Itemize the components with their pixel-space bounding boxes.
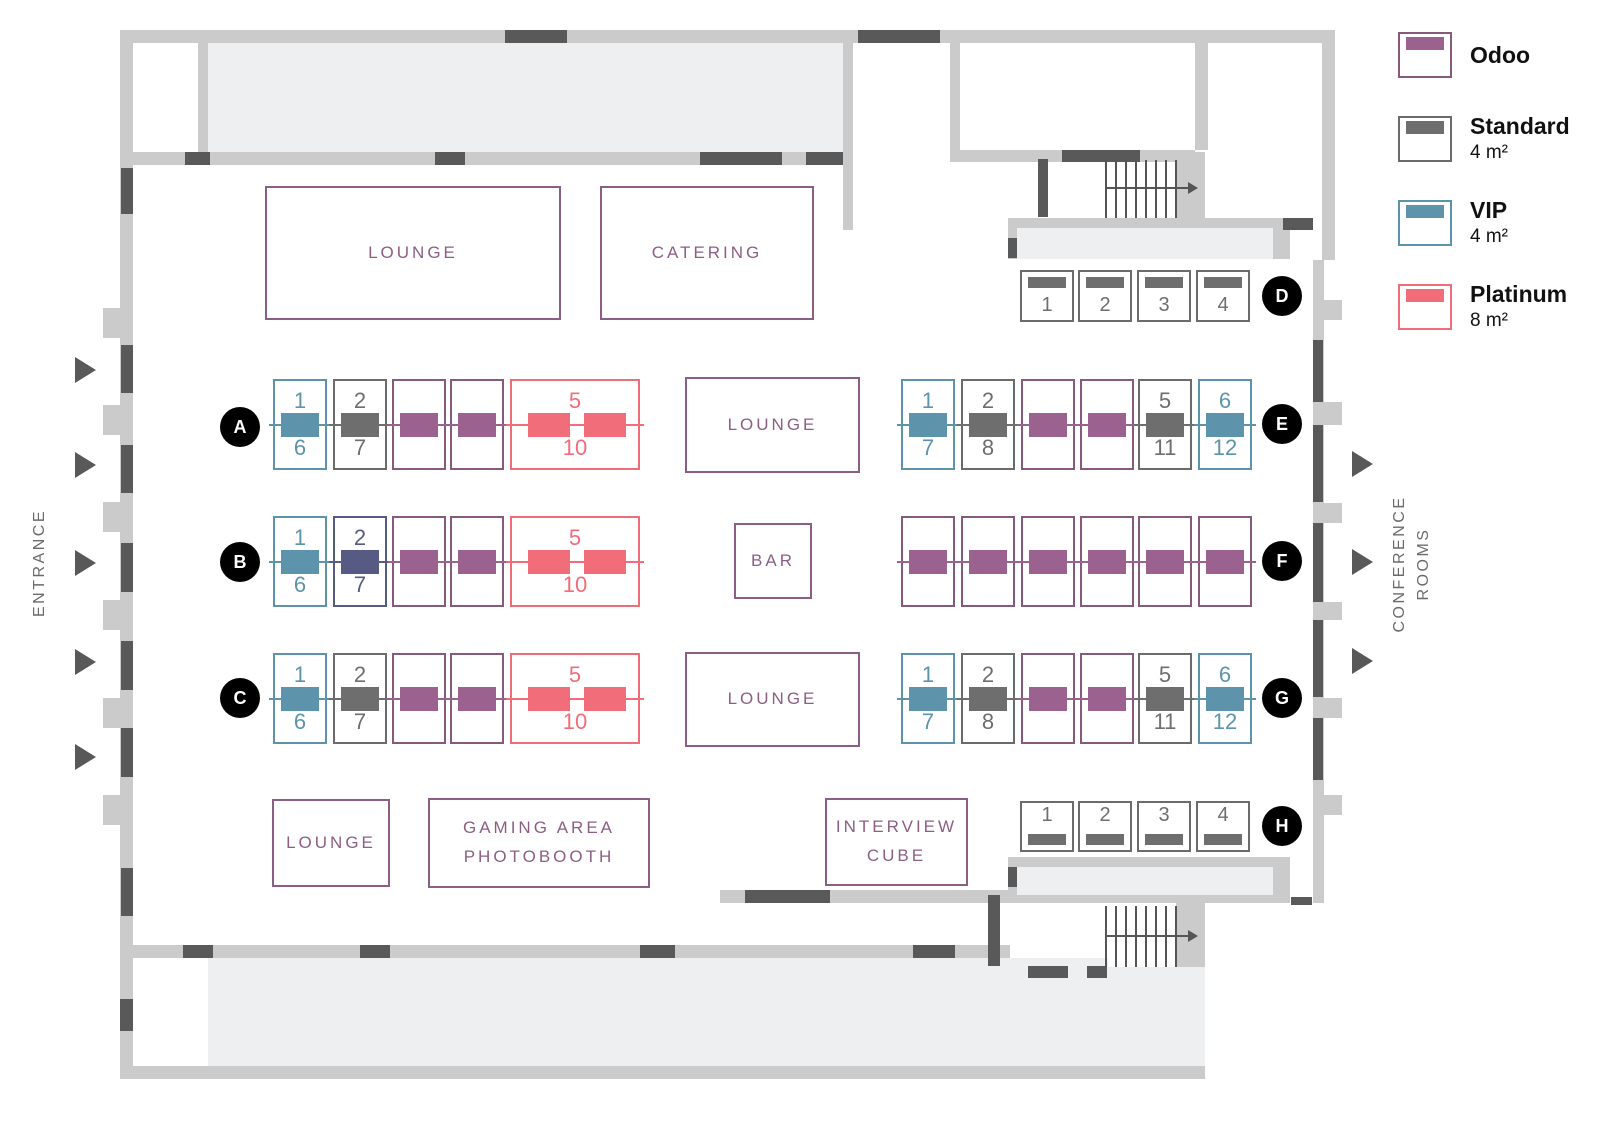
booth-number-bottom: 11 (1140, 435, 1190, 461)
booth-number-bottom: 7 (335, 709, 385, 735)
booth-number-bottom: 6 (275, 709, 325, 735)
booth-F-odoo-2 (961, 516, 1015, 607)
booth-A-5[interactable]: 510 (510, 379, 640, 470)
wall-segment (120, 945, 1010, 958)
booth-number-top: 2 (335, 388, 385, 414)
door-marker (1313, 620, 1323, 697)
booth-B-odoo-4 (450, 516, 504, 607)
legend-label: Odoo (1470, 42, 1530, 68)
booth-G-6[interactable]: 612 (1198, 653, 1252, 744)
booth-fill (1088, 550, 1126, 574)
booth-number-top: 1 (903, 662, 953, 688)
booth-number-bottom: 6 (275, 572, 325, 598)
booth-fill (969, 413, 1007, 437)
booth-fill (969, 687, 1007, 711)
door-marker (1087, 966, 1107, 978)
wall-segment (1322, 43, 1335, 260)
legend-label: Standard (1470, 113, 1570, 139)
booth-number-bottom: 10 (512, 572, 638, 598)
booth-number-bottom: 7 (335, 572, 385, 598)
booth-fill (1146, 687, 1184, 711)
legend-size: 4 m² (1470, 226, 1508, 248)
booth-F-odoo-5 (1138, 516, 1192, 607)
booth-H-4[interactable]: 4 (1196, 801, 1250, 852)
door-marker (121, 728, 133, 777)
direction-arrow-icon (1352, 648, 1373, 674)
door-marker (1283, 218, 1313, 230)
booth-fill (1028, 834, 1066, 845)
door-jamb (103, 795, 133, 825)
door-jamb (1313, 795, 1342, 815)
legend-label: VIP (1470, 197, 1508, 223)
booth-C-odoo-3 (392, 653, 446, 744)
booth-F-odoo-3 (1021, 516, 1075, 607)
stairs-direction-arrow (1105, 935, 1188, 937)
booth-fill (341, 413, 379, 437)
booth-number-top: 2 (963, 662, 1013, 688)
wall-segment (843, 43, 853, 230)
booth-fill (1206, 413, 1244, 437)
booth-fill (281, 413, 319, 437)
booth-F-odoo-1 (901, 516, 955, 607)
booth-B-2: 27 (333, 516, 387, 607)
direction-arrow-icon (75, 452, 96, 478)
booth-D-3[interactable]: 3 (1137, 270, 1191, 322)
door-marker (185, 152, 210, 165)
booth-fill (1204, 277, 1242, 288)
booth-fill (458, 413, 496, 437)
booth-number-bottom: 7 (903, 435, 953, 461)
door-marker (121, 641, 133, 690)
area-lounge-top: LOUNGE (265, 186, 561, 320)
booth-number: 1 (1022, 804, 1072, 827)
booth-fill (1145, 834, 1183, 845)
row-label-F: F (1262, 541, 1302, 581)
booth-number-bottom: 7 (903, 709, 953, 735)
area-catering: CATERING (600, 186, 814, 320)
booth-number: 4 (1198, 294, 1248, 317)
booth-G-1[interactable]: 17 (901, 653, 955, 744)
booth-D-4[interactable]: 4 (1196, 270, 1250, 322)
booth-number-bottom: 12 (1200, 435, 1250, 461)
booth-fill (1146, 550, 1184, 574)
door-jamb (1313, 402, 1342, 425)
door-marker (1028, 966, 1068, 978)
booth-fill (400, 687, 438, 711)
booth-B-1[interactable]: 16 (273, 516, 327, 607)
booth-fill (281, 550, 319, 574)
booth-number-bottom: 10 (512, 435, 638, 461)
direction-arrow-icon (75, 649, 96, 675)
door-marker (120, 999, 133, 1031)
booth-fill-icon (1406, 289, 1444, 302)
door-marker (640, 945, 675, 958)
booth-number: 1 (1022, 294, 1072, 317)
area-gaming-photobooth: GAMING AREA PHOTOBOOTH (428, 798, 650, 888)
booth-number: 2 (1080, 294, 1130, 317)
booth-fill (400, 550, 438, 574)
stair-step (1175, 160, 1177, 218)
area-lounge-bottom-left: LOUNGE (272, 799, 390, 887)
booth-G-2[interactable]: 28 (961, 653, 1015, 744)
booth-fill (528, 687, 570, 711)
room-area (1108, 967, 1205, 1066)
booth-number-top: 5 (512, 388, 638, 414)
booth-fill (1086, 834, 1124, 845)
booth-fill (1028, 277, 1066, 288)
door-jamb (103, 405, 133, 435)
door-jamb (103, 502, 133, 532)
booth-fill (1088, 687, 1126, 711)
stairs-arrow-head (1188, 182, 1198, 194)
booth-F-odoo-6 (1198, 516, 1252, 607)
booth-fill (584, 550, 626, 574)
booth-A-1[interactable]: 16 (273, 379, 327, 470)
booth-number-top: 6 (1200, 662, 1250, 688)
door-marker (183, 945, 213, 958)
stair-step (1155, 160, 1157, 218)
door-jamb (1313, 300, 1342, 320)
booth-number-bottom: 8 (963, 709, 1013, 735)
door-marker (1313, 340, 1323, 402)
booth-number-bottom: 11 (1140, 709, 1190, 735)
booth-number-top: 2 (335, 525, 385, 551)
direction-arrow-icon (1352, 451, 1373, 477)
booth-E-5[interactable]: 511 (1138, 379, 1192, 470)
stairs-icon (1105, 906, 1177, 967)
area-bar: BAR (734, 523, 812, 599)
booth-fill (1029, 413, 1067, 437)
stairs-direction-arrow (1105, 187, 1188, 189)
wall-segment (120, 30, 1335, 43)
legend-label: Platinum (1470, 281, 1567, 307)
door-jamb (103, 308, 133, 338)
door-marker (121, 168, 133, 214)
booth-E-odoo-3 (1021, 379, 1075, 470)
row-label-G: G (1262, 678, 1302, 718)
door-jamb (1313, 698, 1342, 718)
direction-arrow-icon (75, 550, 96, 576)
booth-fill (1029, 550, 1067, 574)
wall-segment (1195, 43, 1208, 150)
booth-fill (909, 687, 947, 711)
booth-fill (909, 550, 947, 574)
stairs-icon (1105, 160, 1177, 218)
booth-F-odoo-4 (1080, 516, 1134, 607)
booth-A-2[interactable]: 27 (333, 379, 387, 470)
door-marker (1313, 425, 1323, 502)
booth-C-1[interactable]: 16 (273, 653, 327, 744)
booth-fill (1204, 834, 1242, 845)
booth-number: 3 (1139, 294, 1189, 317)
booth-B-odoo-3 (392, 516, 446, 607)
booth-number-top: 1 (275, 388, 325, 414)
booth-number-top: 2 (963, 388, 1013, 414)
booth-fill-icon (1406, 37, 1444, 50)
door-marker (745, 890, 830, 903)
booth-number-bottom: 6 (275, 435, 325, 461)
door-marker (1313, 523, 1323, 602)
booth-fill (909, 413, 947, 437)
booth-E-2[interactable]: 28 (961, 379, 1015, 470)
door-marker (360, 945, 390, 958)
door-marker (121, 543, 133, 592)
direction-arrow-icon (1352, 549, 1373, 575)
door-marker (1291, 897, 1312, 905)
booth-fill (341, 687, 379, 711)
wall-segment (198, 43, 208, 152)
room-area (1017, 228, 1273, 259)
door-marker (121, 868, 133, 916)
door-marker (1313, 718, 1323, 780)
door-jamb (103, 698, 133, 728)
stair-step (1145, 160, 1147, 218)
booth-C-5[interactable]: 510 (510, 653, 640, 744)
legend-item-platinum: Platinum 8 m² (1398, 281, 1567, 332)
door-marker (806, 152, 843, 165)
room-area (1017, 867, 1273, 895)
booth-H-2[interactable]: 2 (1078, 801, 1132, 852)
booth-number-top: 5 (1140, 388, 1190, 414)
booth-D-1[interactable]: 1 (1020, 270, 1074, 322)
booth-fill (584, 413, 626, 437)
booth-fill (281, 687, 319, 711)
booth-fill (528, 550, 570, 574)
door-jamb (103, 600, 133, 630)
booth-number-bottom: 12 (1200, 709, 1250, 735)
row-label-H: H (1262, 806, 1302, 846)
booth-fill-icon (1406, 205, 1444, 218)
area-interview-cube: INTERVIEW CUBE (825, 798, 968, 886)
booth-C-2[interactable]: 27 (333, 653, 387, 744)
row-label-D: D (1262, 276, 1302, 316)
door-jamb (1313, 602, 1342, 620)
booth-fill (1206, 687, 1244, 711)
door-marker (435, 152, 465, 165)
booth-C-odoo-4 (450, 653, 504, 744)
booth-number-top: 1 (275, 525, 325, 551)
booth-G-5[interactable]: 511 (1138, 653, 1192, 744)
booth-E-6[interactable]: 612 (1198, 379, 1252, 470)
door-marker (1008, 238, 1017, 258)
legend-size: 8 m² (1470, 310, 1567, 332)
stair-step (1115, 160, 1117, 218)
door-marker (988, 895, 1000, 966)
door-jamb (1313, 503, 1342, 523)
booth-fill (1029, 687, 1067, 711)
room-area (208, 958, 1108, 1066)
booth-fill (1088, 413, 1126, 437)
booth-fill (1086, 277, 1124, 288)
booth-A-odoo-3 (392, 379, 446, 470)
booth-G-odoo-3 (1021, 653, 1075, 744)
booth-fill (400, 413, 438, 437)
booth-fill (528, 413, 570, 437)
booth-A-odoo-4 (450, 379, 504, 470)
direction-arrow-icon (75, 357, 96, 383)
booth-number-bottom: 8 (963, 435, 1013, 461)
booth-number-top: 1 (903, 388, 953, 414)
stair-step (1105, 160, 1107, 218)
booth-number-top: 5 (512, 525, 638, 551)
booth-fill (458, 550, 496, 574)
wall-segment (120, 1066, 1205, 1079)
wall-segment (120, 43, 133, 152)
booth-number-top: 6 (1200, 388, 1250, 414)
booth-H-1[interactable]: 1 (1020, 801, 1074, 852)
booth-fill (458, 687, 496, 711)
stairs-arrow-head (1188, 930, 1198, 942)
door-marker (1008, 867, 1017, 887)
row-label-A: A (220, 407, 260, 447)
door-marker (700, 152, 782, 165)
booth-fill (969, 550, 1007, 574)
legend-swatch-odoo (1398, 32, 1452, 78)
entrance-label: ENTRANCE (28, 463, 52, 663)
booth-fill (1206, 550, 1244, 574)
booth-number-top: 5 (1140, 662, 1190, 688)
booth-fill (1145, 277, 1183, 288)
legend-item-vip: VIP 4 m² (1398, 197, 1508, 248)
booth-number-top: 5 (512, 662, 638, 688)
legend-item-odoo: Odoo (1398, 32, 1530, 78)
legend-size: 4 m² (1470, 142, 1570, 164)
wall-segment (950, 43, 960, 150)
row-label-B: B (220, 542, 260, 582)
row-label-E: E (1262, 404, 1302, 444)
floor-plan: ENTRANCE CONFERENCE ROOMS LOUNGE CATERIN… (0, 0, 1600, 1124)
booth-fill-icon (1406, 121, 1444, 134)
booth-number-top: 2 (335, 662, 385, 688)
booth-fill (1146, 413, 1184, 437)
booth-E-1[interactable]: 17 (901, 379, 955, 470)
booth-G-odoo-4 (1080, 653, 1134, 744)
legend-swatch-vip (1398, 200, 1452, 246)
door-marker (121, 345, 133, 393)
legend-item-standard: Standard 4 m² (1398, 113, 1570, 164)
booth-number: 4 (1198, 804, 1248, 827)
stair-step (1125, 160, 1127, 218)
booth-H-3[interactable]: 3 (1137, 801, 1191, 852)
area-lounge-lower: LOUNGE (685, 652, 860, 747)
booth-fill (584, 687, 626, 711)
booth-number-bottom: 7 (335, 435, 385, 461)
area-lounge-middle: LOUNGE (685, 377, 860, 473)
legend-swatch-platinum (1398, 284, 1452, 330)
booth-fill (341, 550, 379, 574)
legend-swatch-standard (1398, 116, 1452, 162)
door-marker (913, 945, 955, 958)
conference-rooms-label: CONFERENCE ROOMS (1388, 464, 1436, 664)
booth-E-odoo-4 (1080, 379, 1134, 470)
row-label-C: C (220, 678, 260, 718)
stair-step (1165, 160, 1167, 218)
booth-number-top: 1 (275, 662, 325, 688)
door-marker (505, 30, 567, 43)
door-marker (1038, 159, 1048, 217)
door-marker (858, 30, 940, 43)
booth-B-5[interactable]: 510 (510, 516, 640, 607)
room-area (208, 43, 843, 152)
booth-number-bottom: 10 (512, 709, 638, 735)
direction-arrow-icon (75, 744, 96, 770)
booth-number: 2 (1080, 804, 1130, 827)
booth-number: 3 (1139, 804, 1189, 827)
stair-step (1135, 160, 1137, 218)
door-marker (121, 445, 133, 493)
booth-D-2[interactable]: 2 (1078, 270, 1132, 322)
